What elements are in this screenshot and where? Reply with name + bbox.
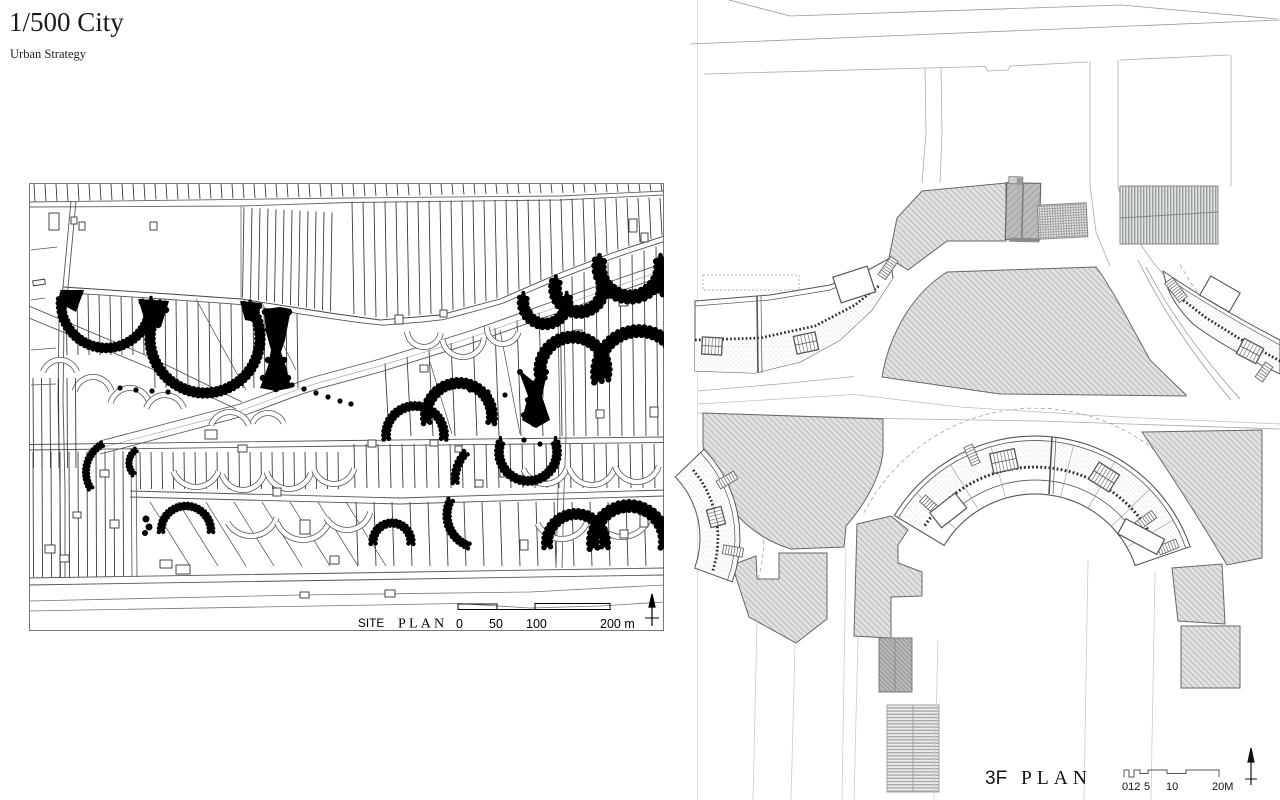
svg-text:100: 100 xyxy=(526,617,547,631)
svg-text:012: 012 xyxy=(1122,781,1140,793)
svg-text:SITE: SITE xyxy=(358,616,384,630)
svg-text:1/500 City: 1/500 City xyxy=(9,7,124,37)
svg-text:20M: 20M xyxy=(1212,781,1233,793)
svg-text:Urban Strategy: Urban Strategy xyxy=(10,47,87,61)
svg-text:5: 5 xyxy=(1144,781,1150,793)
svg-text:3F: 3F xyxy=(985,768,1007,789)
svg-text:PLAN: PLAN xyxy=(398,617,447,632)
svg-text:50: 50 xyxy=(489,617,503,631)
svg-text:PLAN: PLAN xyxy=(1021,768,1092,789)
svg-text:200 m: 200 m xyxy=(600,617,635,631)
svg-text:0: 0 xyxy=(456,617,463,631)
svg-text:10: 10 xyxy=(1166,781,1178,793)
